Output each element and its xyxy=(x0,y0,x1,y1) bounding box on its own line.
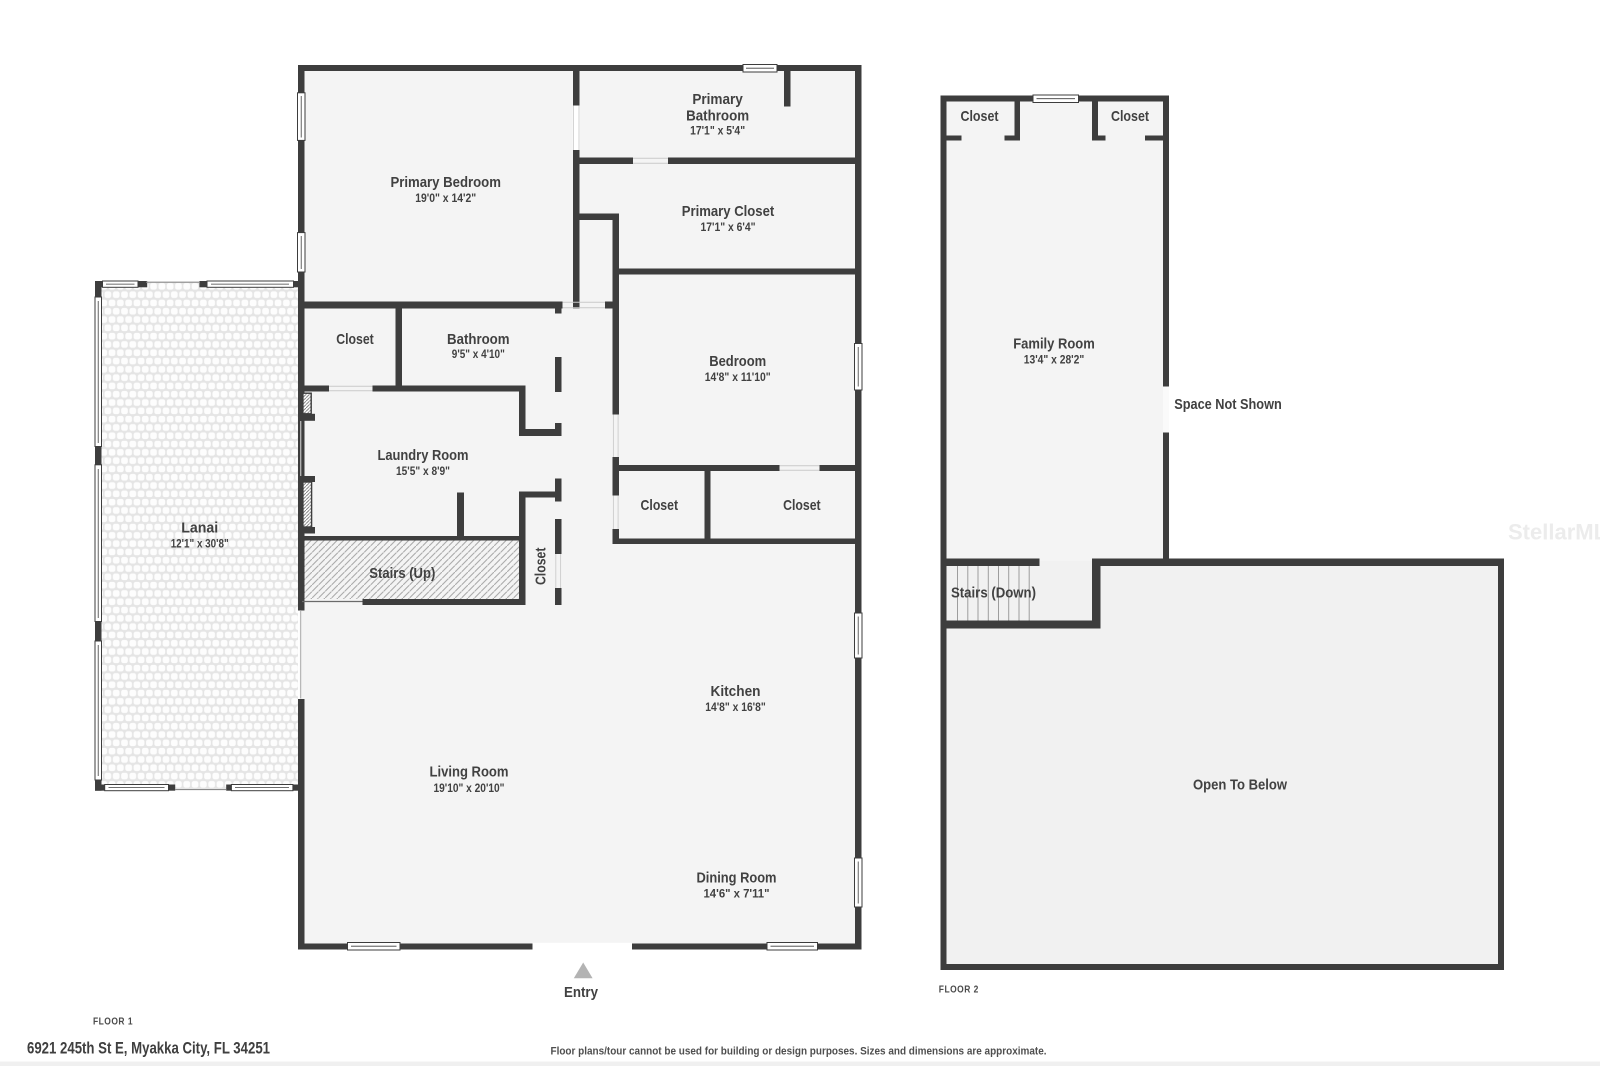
svg-text:Stairs (Up): Stairs (Up) xyxy=(369,565,435,582)
svg-text:Closet: Closet xyxy=(783,497,821,514)
svg-text:Bedroom: Bedroom xyxy=(709,353,766,370)
svg-text:Primary Bedroom: Primary Bedroom xyxy=(390,174,501,191)
svg-text:Stairs (Down): Stairs (Down) xyxy=(951,585,1036,602)
svg-text:Entry: Entry xyxy=(564,984,599,1001)
svg-text:Dining Room: Dining Room xyxy=(697,870,777,887)
svg-text:6921 245th St E, Myakka City,: 6921 245th St E, Myakka City, FL 34251 xyxy=(27,1040,270,1058)
svg-text:9'5" x 4'10": 9'5" x 4'10" xyxy=(452,347,505,361)
svg-text:17'1" x 6'4": 17'1" x 6'4" xyxy=(701,220,756,234)
svg-text:Closet: Closet xyxy=(641,497,679,514)
svg-text:13'4" x 28'2": 13'4" x 28'2" xyxy=(1024,353,1085,367)
svg-text:Primary: Primary xyxy=(692,91,743,108)
svg-text:Closet: Closet xyxy=(532,548,549,586)
svg-text:Primary Closet: Primary Closet xyxy=(682,203,775,220)
svg-text:19'10" x 20'10": 19'10" x 20'10" xyxy=(434,781,505,795)
svg-text:Closet: Closet xyxy=(336,331,374,348)
svg-text:StellarMLS: StellarMLS xyxy=(1508,520,1600,545)
svg-text:Lanai: Lanai xyxy=(181,520,218,537)
svg-text:14'8" x 11'10": 14'8" x 11'10" xyxy=(705,370,771,384)
svg-text:Kitchen: Kitchen xyxy=(711,683,761,700)
svg-text:Bathroom: Bathroom xyxy=(447,331,510,348)
svg-text:Closet: Closet xyxy=(961,108,999,125)
svg-text:Closet: Closet xyxy=(1111,108,1149,125)
svg-text:19'0" x 14'2": 19'0" x 14'2" xyxy=(415,191,476,205)
svg-text:Family Room: Family Room xyxy=(1013,336,1095,353)
svg-text:FLOOR 1: FLOOR 1 xyxy=(93,1016,133,1028)
svg-text:Floor plans/tour cannot be use: Floor plans/tour cannot be used for buil… xyxy=(551,1046,1047,1058)
svg-text:Living Room: Living Room xyxy=(430,764,509,781)
svg-text:14'6" x 7'11": 14'6" x 7'11" xyxy=(704,887,770,901)
svg-text:Space Not Shown: Space Not Shown xyxy=(1174,396,1282,413)
svg-text:FLOOR 2: FLOOR 2 xyxy=(939,984,979,996)
svg-text:17'1" x 5'4": 17'1" x 5'4" xyxy=(690,124,745,138)
svg-text:15'5" x 8'9": 15'5" x 8'9" xyxy=(396,464,450,478)
svg-text:Laundry Room: Laundry Room xyxy=(378,447,469,464)
svg-text:Open To Below: Open To Below xyxy=(1193,777,1287,794)
svg-text:12'1" x 30'8": 12'1" x 30'8" xyxy=(171,537,229,551)
svg-text:Bathroom: Bathroom xyxy=(686,108,749,125)
svg-text:14'8" x 16'8": 14'8" x 16'8" xyxy=(705,700,766,714)
